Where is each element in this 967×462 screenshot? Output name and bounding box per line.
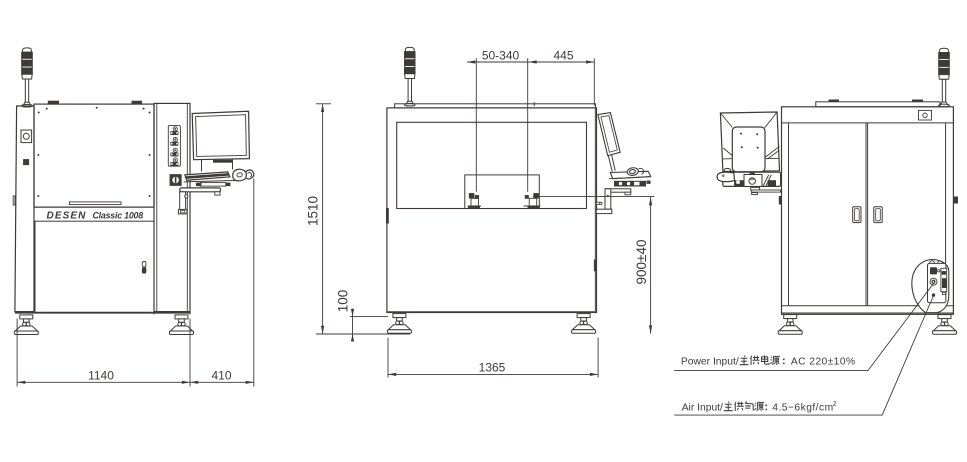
svg-text:100: 100 — [336, 290, 351, 313]
svg-text:Air Input/: Air Input/ — [682, 403, 723, 414]
svg-text:1140: 1140 — [88, 368, 114, 382]
svg-text:Classic 1008: Classic 1008 — [93, 211, 144, 221]
svg-text:1510: 1510 — [305, 196, 320, 226]
svg-text:AC 220±10%: AC 220±10% — [791, 357, 856, 368]
svg-text:1365: 1365 — [479, 361, 506, 375]
svg-text:50-340: 50-340 — [482, 49, 520, 63]
svg-text:Power Input/: Power Input/ — [681, 357, 739, 368]
svg-text:4.5−6kgf/cm: 4.5−6kgf/cm — [772, 403, 833, 414]
svg-text:2: 2 — [833, 401, 837, 408]
svg-text:410: 410 — [211, 368, 231, 382]
svg-text:445: 445 — [553, 49, 573, 63]
svg-text:DESEN: DESEN — [47, 211, 87, 222]
svg-text:900±40: 900±40 — [634, 240, 649, 285]
